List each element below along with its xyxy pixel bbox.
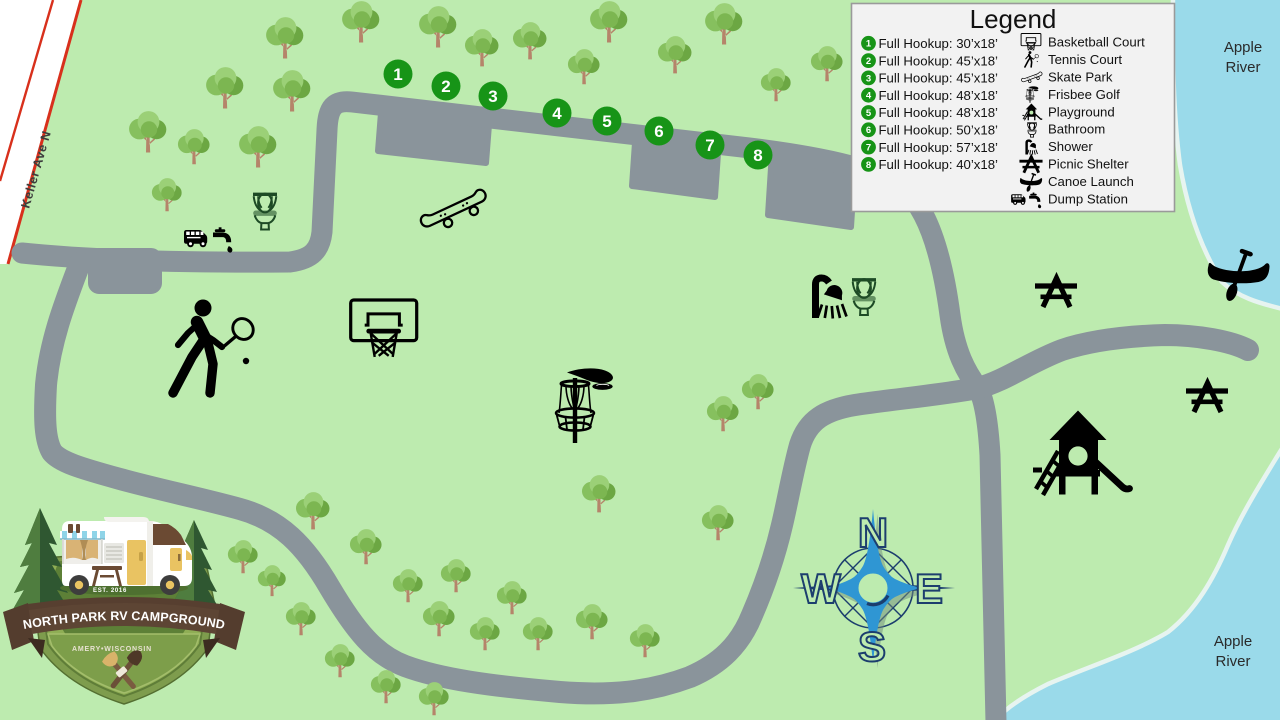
- svg-text:4: 4: [552, 104, 562, 123]
- svg-text:Full Hookup: 40’x18’: Full Hookup: 40’x18’: [879, 157, 999, 172]
- svg-text:7: 7: [705, 136, 714, 155]
- svg-text:W: W: [801, 565, 841, 612]
- svg-text:Full Hookup: 45’x18’: Full Hookup: 45’x18’: [879, 53, 999, 68]
- svg-text:Full Hookup: 57’x18’: Full Hookup: 57’x18’: [879, 140, 999, 155]
- svg-text:2: 2: [866, 56, 871, 67]
- svg-text:S: S: [858, 623, 886, 670]
- svg-text:Frisbee Golf: Frisbee Golf: [1048, 87, 1120, 102]
- svg-text:8: 8: [866, 160, 871, 171]
- svg-text:7: 7: [866, 143, 871, 154]
- svg-text:River: River: [1225, 59, 1260, 76]
- svg-text:2: 2: [441, 77, 450, 96]
- svg-text:Playground: Playground: [1048, 104, 1115, 119]
- svg-text:N: N: [858, 509, 888, 556]
- svg-text:1: 1: [866, 39, 872, 50]
- svg-text:Apple: Apple: [1224, 39, 1262, 56]
- svg-text:8: 8: [753, 146, 762, 165]
- svg-text:Basketball Court: Basketball Court: [1048, 35, 1145, 50]
- svg-text:Shower: Shower: [1048, 139, 1093, 154]
- svg-text:Full Hookup: 45’x18’: Full Hookup: 45’x18’: [879, 71, 999, 86]
- svg-text:EST. 2016: EST. 2016: [93, 588, 127, 594]
- svg-text:1: 1: [393, 65, 402, 84]
- svg-text:Apple: Apple: [1214, 633, 1252, 650]
- svg-text:Skate Park: Skate Park: [1048, 69, 1113, 84]
- svg-text:5: 5: [866, 108, 872, 119]
- svg-text:E: E: [915, 565, 943, 612]
- svg-text:Dump Station: Dump Station: [1048, 192, 1128, 207]
- svg-text:3: 3: [866, 73, 871, 84]
- svg-text:Picnic Shelter: Picnic Shelter: [1048, 157, 1129, 172]
- svg-text:3: 3: [488, 87, 497, 106]
- svg-text:Full Hookup: 48’x18’: Full Hookup: 48’x18’: [879, 88, 999, 103]
- svg-text:Canoe Launch: Canoe Launch: [1048, 174, 1134, 189]
- svg-text:4: 4: [866, 91, 872, 102]
- svg-text:Full Hookup: 50’x18’: Full Hookup: 50’x18’: [879, 123, 999, 138]
- svg-text:5: 5: [602, 112, 611, 131]
- svg-text:Bathroom: Bathroom: [1048, 122, 1105, 137]
- svg-text:Legend: Legend: [970, 4, 1057, 34]
- svg-text:Tennis Court: Tennis Court: [1048, 52, 1122, 67]
- svg-text:Full Hookup: 48’x18’: Full Hookup: 48’x18’: [879, 105, 999, 120]
- svg-text:Full Hookup: 30’x18’: Full Hookup: 30’x18’: [879, 36, 999, 51]
- svg-text:River: River: [1215, 653, 1250, 670]
- svg-text:6: 6: [866, 125, 871, 136]
- svg-text:6: 6: [654, 122, 663, 141]
